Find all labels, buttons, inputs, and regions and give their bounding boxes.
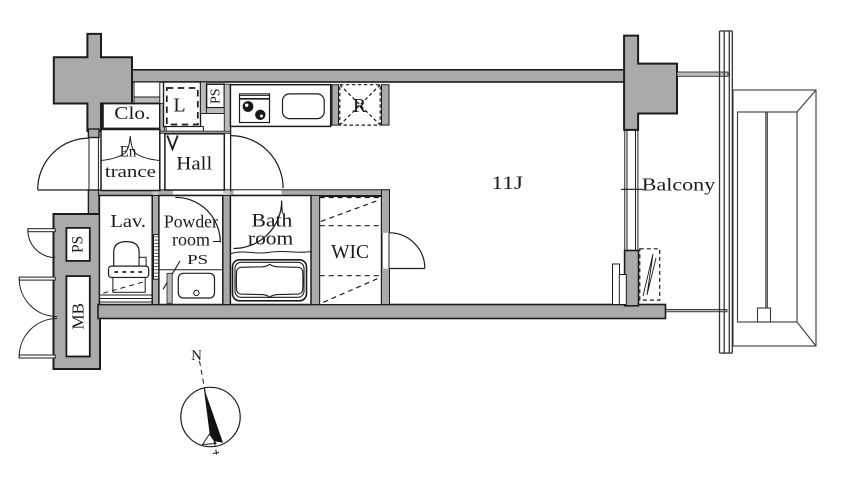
svg-text:Balcony: Balcony — [642, 175, 716, 195]
svg-text:room: room — [172, 229, 210, 249]
svg-text:room: room — [248, 229, 294, 249]
svg-text:Lav.: Lav. — [110, 211, 146, 231]
svg-text:PS: PS — [208, 88, 223, 104]
svg-text:PS: PS — [70, 236, 87, 253]
svg-text:PS: PS — [187, 253, 208, 268]
svg-text:L: L — [173, 95, 185, 117]
svg-text:11J: 11J — [491, 173, 523, 194]
svg-text:Clo.: Clo. — [114, 103, 150, 123]
svg-text:En: En — [120, 144, 137, 161]
svg-text:N: N — [191, 348, 202, 364]
svg-text:MB: MB — [69, 303, 88, 329]
svg-text:R: R — [353, 95, 367, 117]
svg-text:Hall: Hall — [176, 153, 212, 174]
svg-text:Bath: Bath — [252, 211, 293, 231]
svg-text:trance: trance — [105, 162, 156, 181]
svg-text:WIC: WIC — [331, 241, 369, 263]
